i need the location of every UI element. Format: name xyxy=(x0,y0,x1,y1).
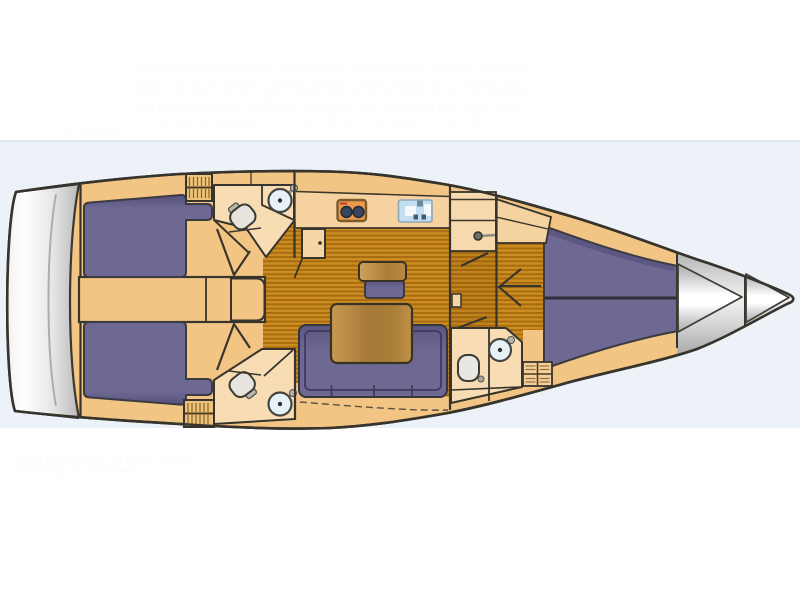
svg-text:lorem ipsum dolor sit amet con: lorem ipsum dolor sit amet consectetuer … xyxy=(136,61,532,75)
svg-text:abc def ghi jklm: abc def ghi jklm xyxy=(60,125,123,135)
svg-text:enim ad minim veniam quis nost: enim ad minim veniam quis nostrud exerci… xyxy=(136,87,529,101)
svg-text:nisl ut aliquip ex ea commodo: nisl ut aliquip ex ea commodo consequat … xyxy=(136,100,520,114)
svg-text:nibh euismod tincidunt ut laor: nibh euismod tincidunt ut laoreet dolore… xyxy=(136,74,524,88)
svg-text:in hendrerit in vulputate veli: in hendrerit in vulputate velit esse mol… xyxy=(136,113,505,127)
svg-text:adipiscing elit sed diam: adipiscing elit sed diam xyxy=(12,463,136,477)
